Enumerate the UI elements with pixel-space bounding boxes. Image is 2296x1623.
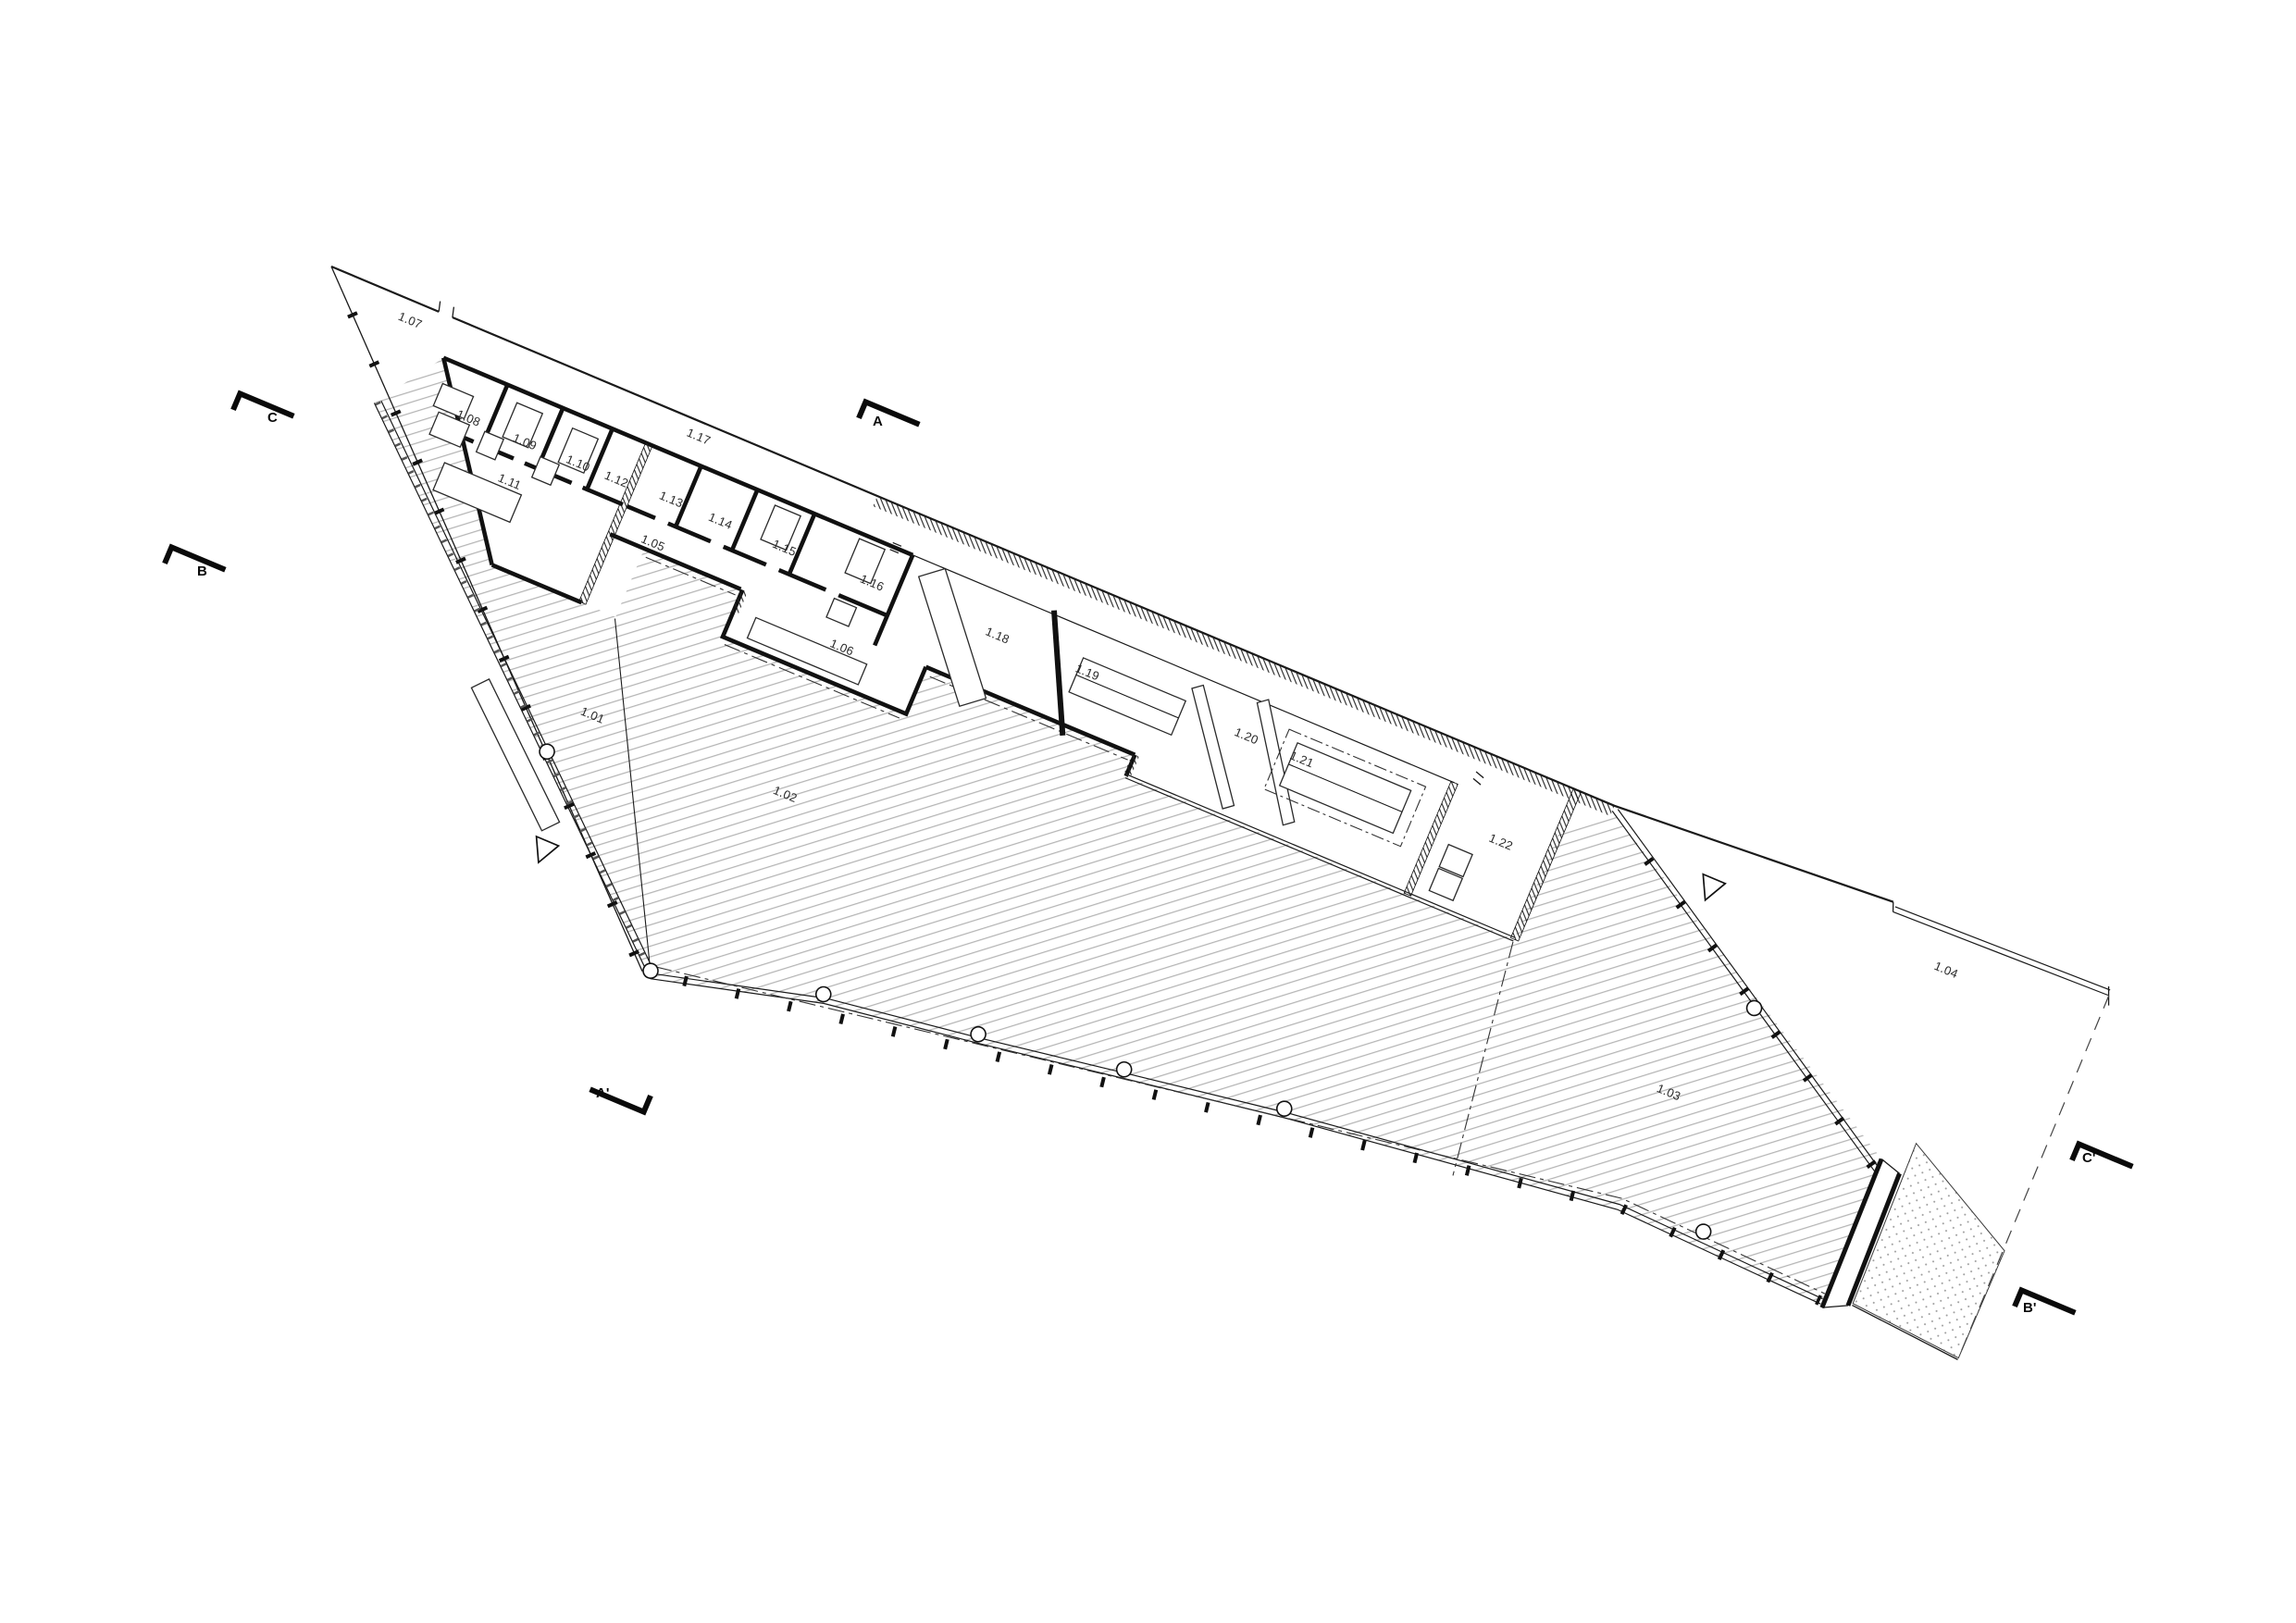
section-letter-C: C: [267, 410, 278, 426]
floor-plan-drawing: 1.011.021.031.041.051.061.071.081.091.10…: [0, 0, 2296, 1623]
section-letter-B: B: [197, 564, 207, 579]
section-letter-C': C': [2082, 1150, 2095, 1166]
section-letter-B': B': [2023, 1300, 2036, 1316]
floor-plan-page: 1.011.021.031.041.051.061.071.081.091.10…: [0, 0, 2296, 1623]
section-letter-A': A': [596, 1085, 609, 1101]
section-letter-A: A: [873, 414, 883, 429]
